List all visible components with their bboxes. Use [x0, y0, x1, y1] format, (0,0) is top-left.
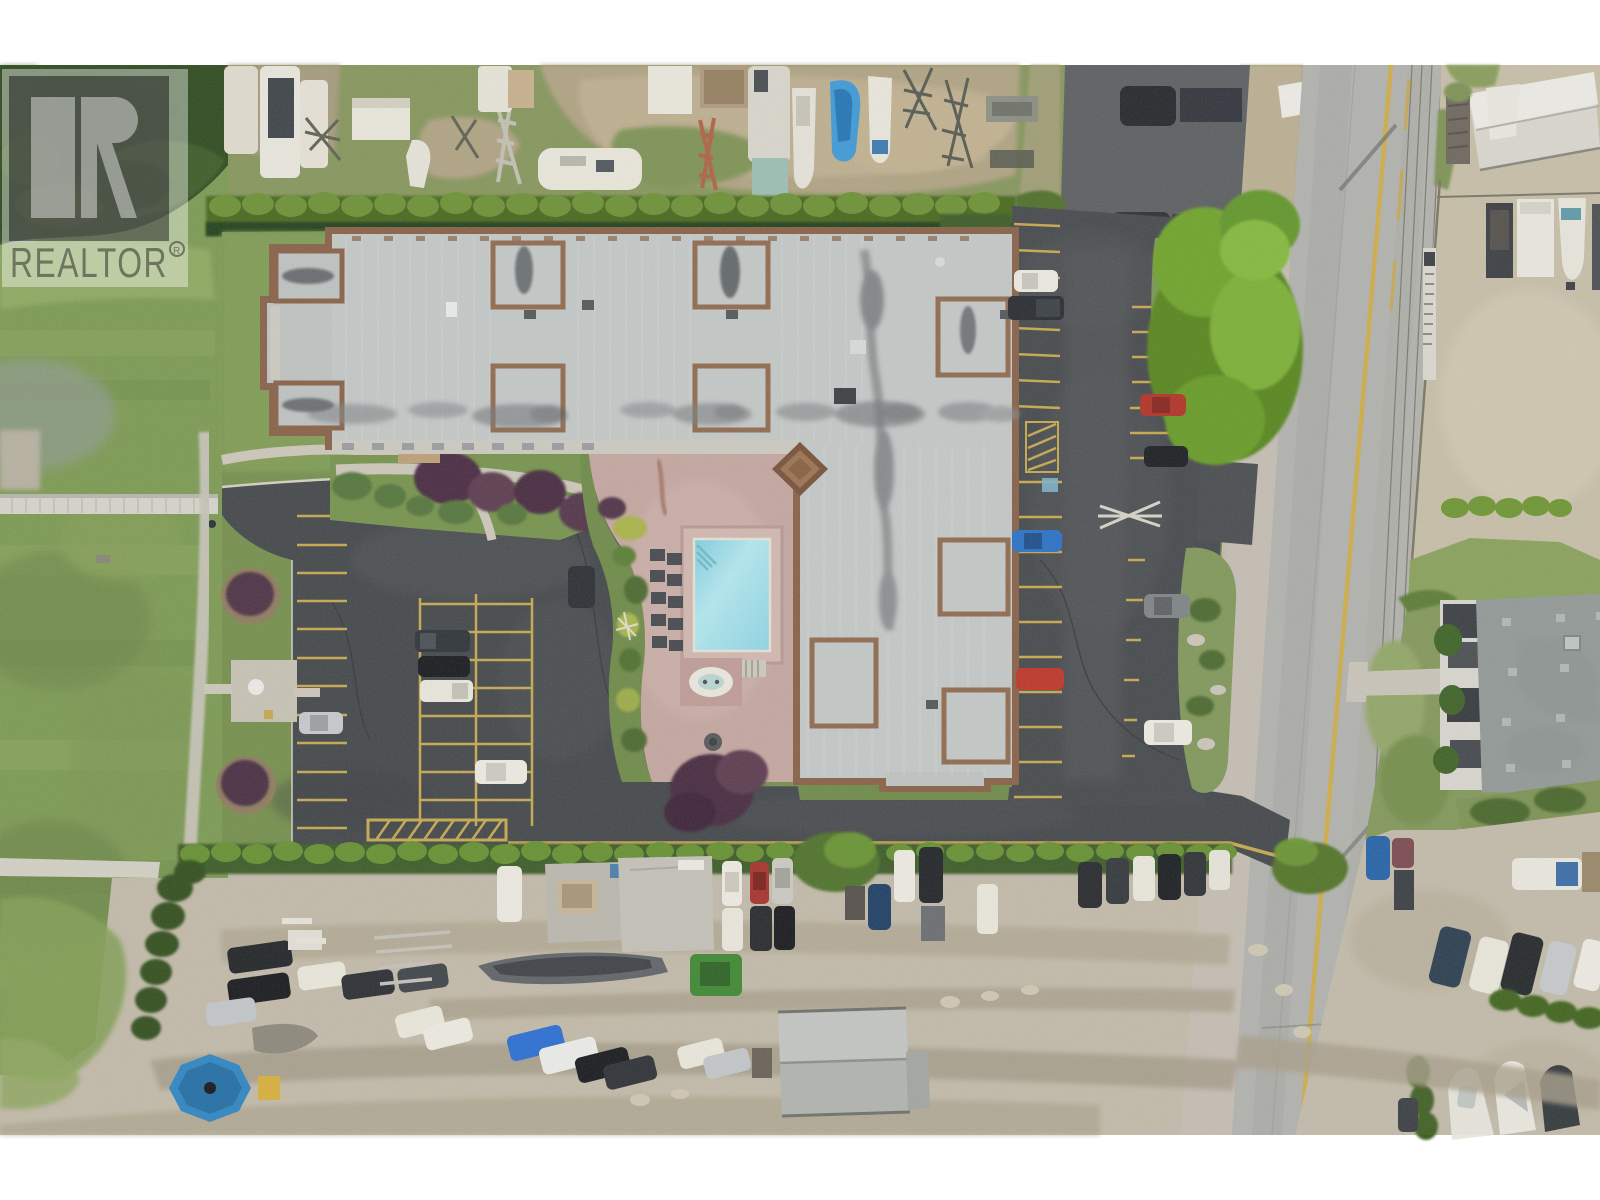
svg-text:R: R: [173, 246, 180, 257]
svg-text:REALTOR: REALTOR: [10, 239, 168, 286]
